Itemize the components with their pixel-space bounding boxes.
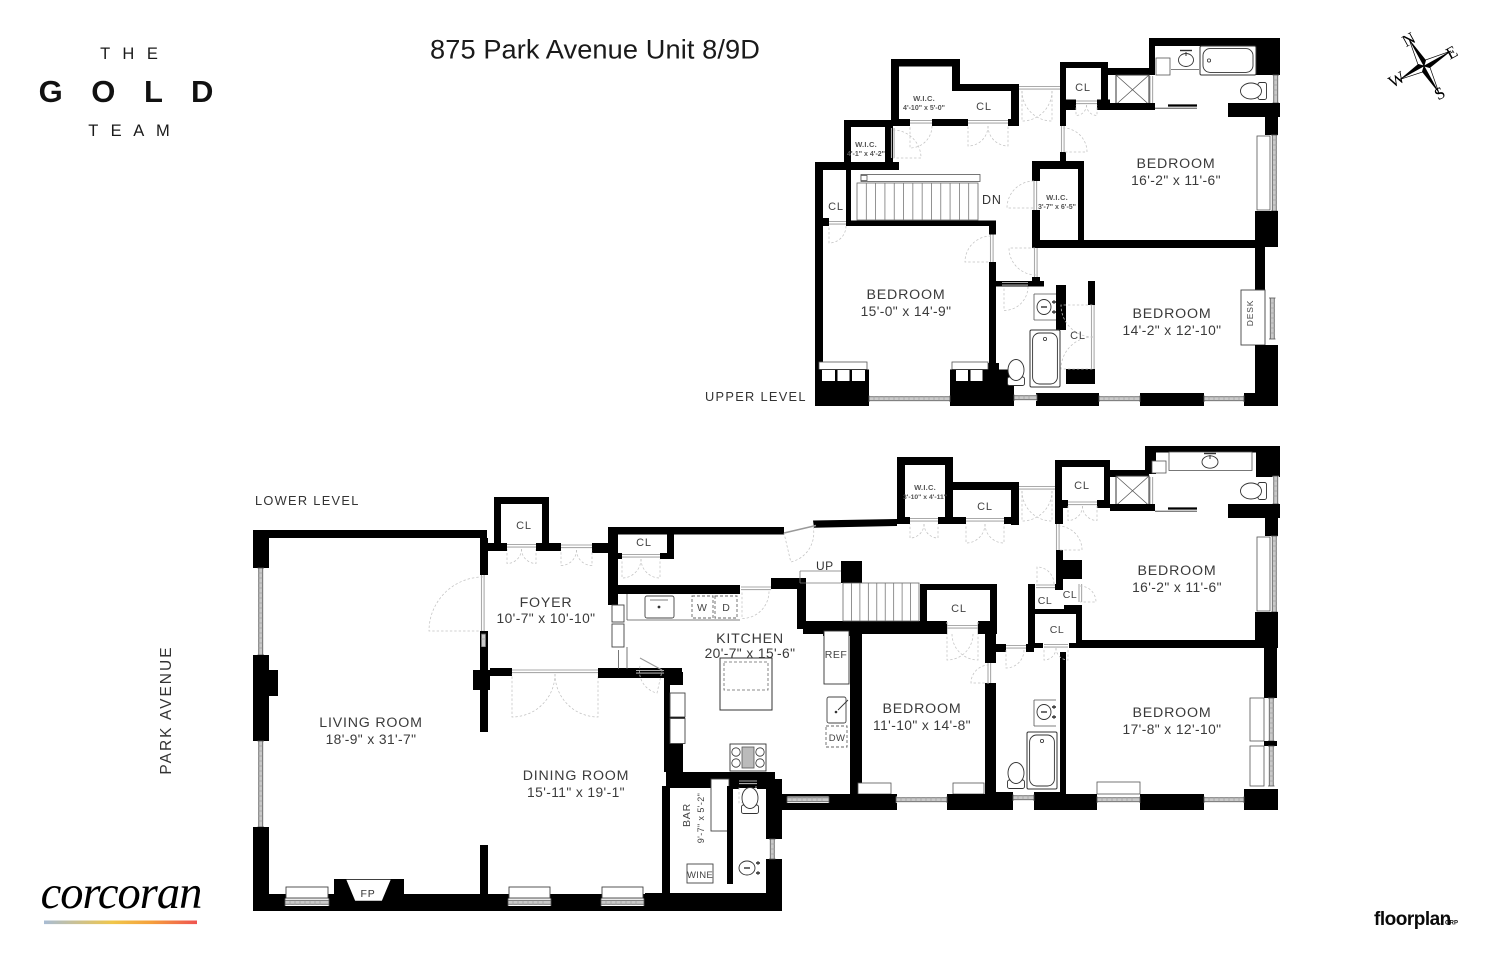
svg-text:DESK: DESK	[1245, 300, 1255, 326]
svg-text:DINING ROOM: DINING ROOM	[523, 768, 630, 784]
svg-text:16'-2" x 11'-6": 16'-2" x 11'-6"	[1131, 173, 1221, 188]
svg-text:4'-1" x 4'-2": 4'-1" x 4'-2"	[847, 151, 885, 158]
svg-text:BAR: BAR	[681, 803, 693, 827]
svg-text:3'-7" x 6'-5": 3'-7" x 6'-5"	[1038, 204, 1076, 211]
svg-text:CL: CL	[1038, 595, 1053, 607]
svg-text:W.I.C.: W.I.C.	[855, 140, 877, 149]
svg-text:GRP: GRP	[1445, 921, 1458, 927]
svg-text:CL: CL	[976, 101, 992, 113]
svg-text:FP: FP	[360, 888, 375, 900]
svg-text:W.I.C.: W.I.C.	[1046, 193, 1068, 202]
svg-text:BEDROOM: BEDROOM	[867, 287, 946, 303]
svg-text:BEDROOM: BEDROOM	[1137, 156, 1216, 172]
svg-text:LOWER LEVEL: LOWER LEVEL	[255, 493, 360, 508]
svg-text:CL: CL	[828, 201, 844, 213]
svg-text:3'-10" x 4'-11": 3'-10" x 4'-11"	[903, 494, 947, 501]
svg-text:CL: CL	[1050, 624, 1065, 636]
svg-text:BEDROOM: BEDROOM	[1133, 306, 1212, 322]
svg-text:D: D	[722, 602, 730, 614]
svg-text:15'-11" x 19'-1": 15'-11" x 19'-1"	[527, 785, 625, 800]
svg-text:14'-2" x 12'-10": 14'-2" x 12'-10"	[1123, 323, 1222, 338]
svg-text:corcoran: corcoran	[41, 868, 202, 919]
svg-text:LIVING ROOM: LIVING ROOM	[319, 715, 422, 731]
svg-text:WINE: WINE	[687, 870, 713, 881]
svg-text:16'-2" x 11'-6": 16'-2" x 11'-6"	[1132, 580, 1222, 595]
svg-text:W.I.C.: W.I.C.	[913, 94, 935, 103]
svg-text:15'-0" x 14'-9": 15'-0" x 14'-9"	[861, 304, 952, 319]
svg-text:W: W	[697, 602, 707, 614]
svg-text:11'-10" x 14'-8": 11'-10" x 14'-8"	[873, 718, 971, 733]
svg-text:17'-8" x 12'-10": 17'-8" x 12'-10"	[1123, 722, 1222, 737]
svg-text:9'-7" x 5'-2": 9'-7" x 5'-2"	[696, 793, 706, 844]
svg-text:875 Park Avenue Unit 8/9D: 875 Park Avenue Unit 8/9D	[430, 34, 760, 65]
svg-text:CL: CL	[1063, 589, 1078, 601]
svg-text:FOYER: FOYER	[520, 595, 573, 611]
svg-text:UPPER LEVEL: UPPER LEVEL	[705, 389, 807, 404]
svg-text:4'-10" x 5'-0": 4'-10" x 5'-0"	[903, 105, 945, 112]
svg-text:CL: CL	[636, 537, 652, 549]
svg-text:floorplan: floorplan	[1374, 909, 1451, 930]
svg-text:KITCHEN: KITCHEN	[716, 631, 784, 647]
svg-text:W.I.C.: W.I.C.	[914, 483, 936, 492]
svg-text:CL: CL	[1075, 82, 1091, 94]
svg-text:G O L D: G O L D	[39, 74, 224, 109]
svg-text:T E A M: T E A M	[88, 122, 173, 140]
svg-text:CL: CL	[951, 603, 967, 615]
svg-text:UP: UP	[816, 559, 834, 573]
svg-text:18'-9" x 31'-7": 18'-9" x 31'-7"	[326, 732, 417, 747]
svg-text:DW: DW	[829, 733, 845, 744]
svg-text:20'-7" x 15'-6": 20'-7" x 15'-6"	[705, 646, 796, 661]
svg-text:DN: DN	[982, 193, 1002, 207]
svg-text:CL: CL	[977, 501, 993, 513]
svg-text:T H E: T H E	[100, 45, 162, 63]
svg-text:CL: CL	[516, 520, 532, 532]
svg-text:BEDROOM: BEDROOM	[1133, 705, 1212, 721]
svg-text:10'-7" x 10'-10": 10'-7" x 10'-10"	[497, 611, 596, 626]
svg-text:BEDROOM: BEDROOM	[883, 701, 962, 717]
svg-text:REF: REF	[825, 649, 848, 661]
svg-text:PARK AVENUE: PARK AVENUE	[158, 645, 175, 774]
svg-text:CL: CL	[1070, 330, 1086, 342]
svg-text:CL: CL	[1074, 480, 1090, 492]
svg-text:BEDROOM: BEDROOM	[1138, 563, 1217, 579]
